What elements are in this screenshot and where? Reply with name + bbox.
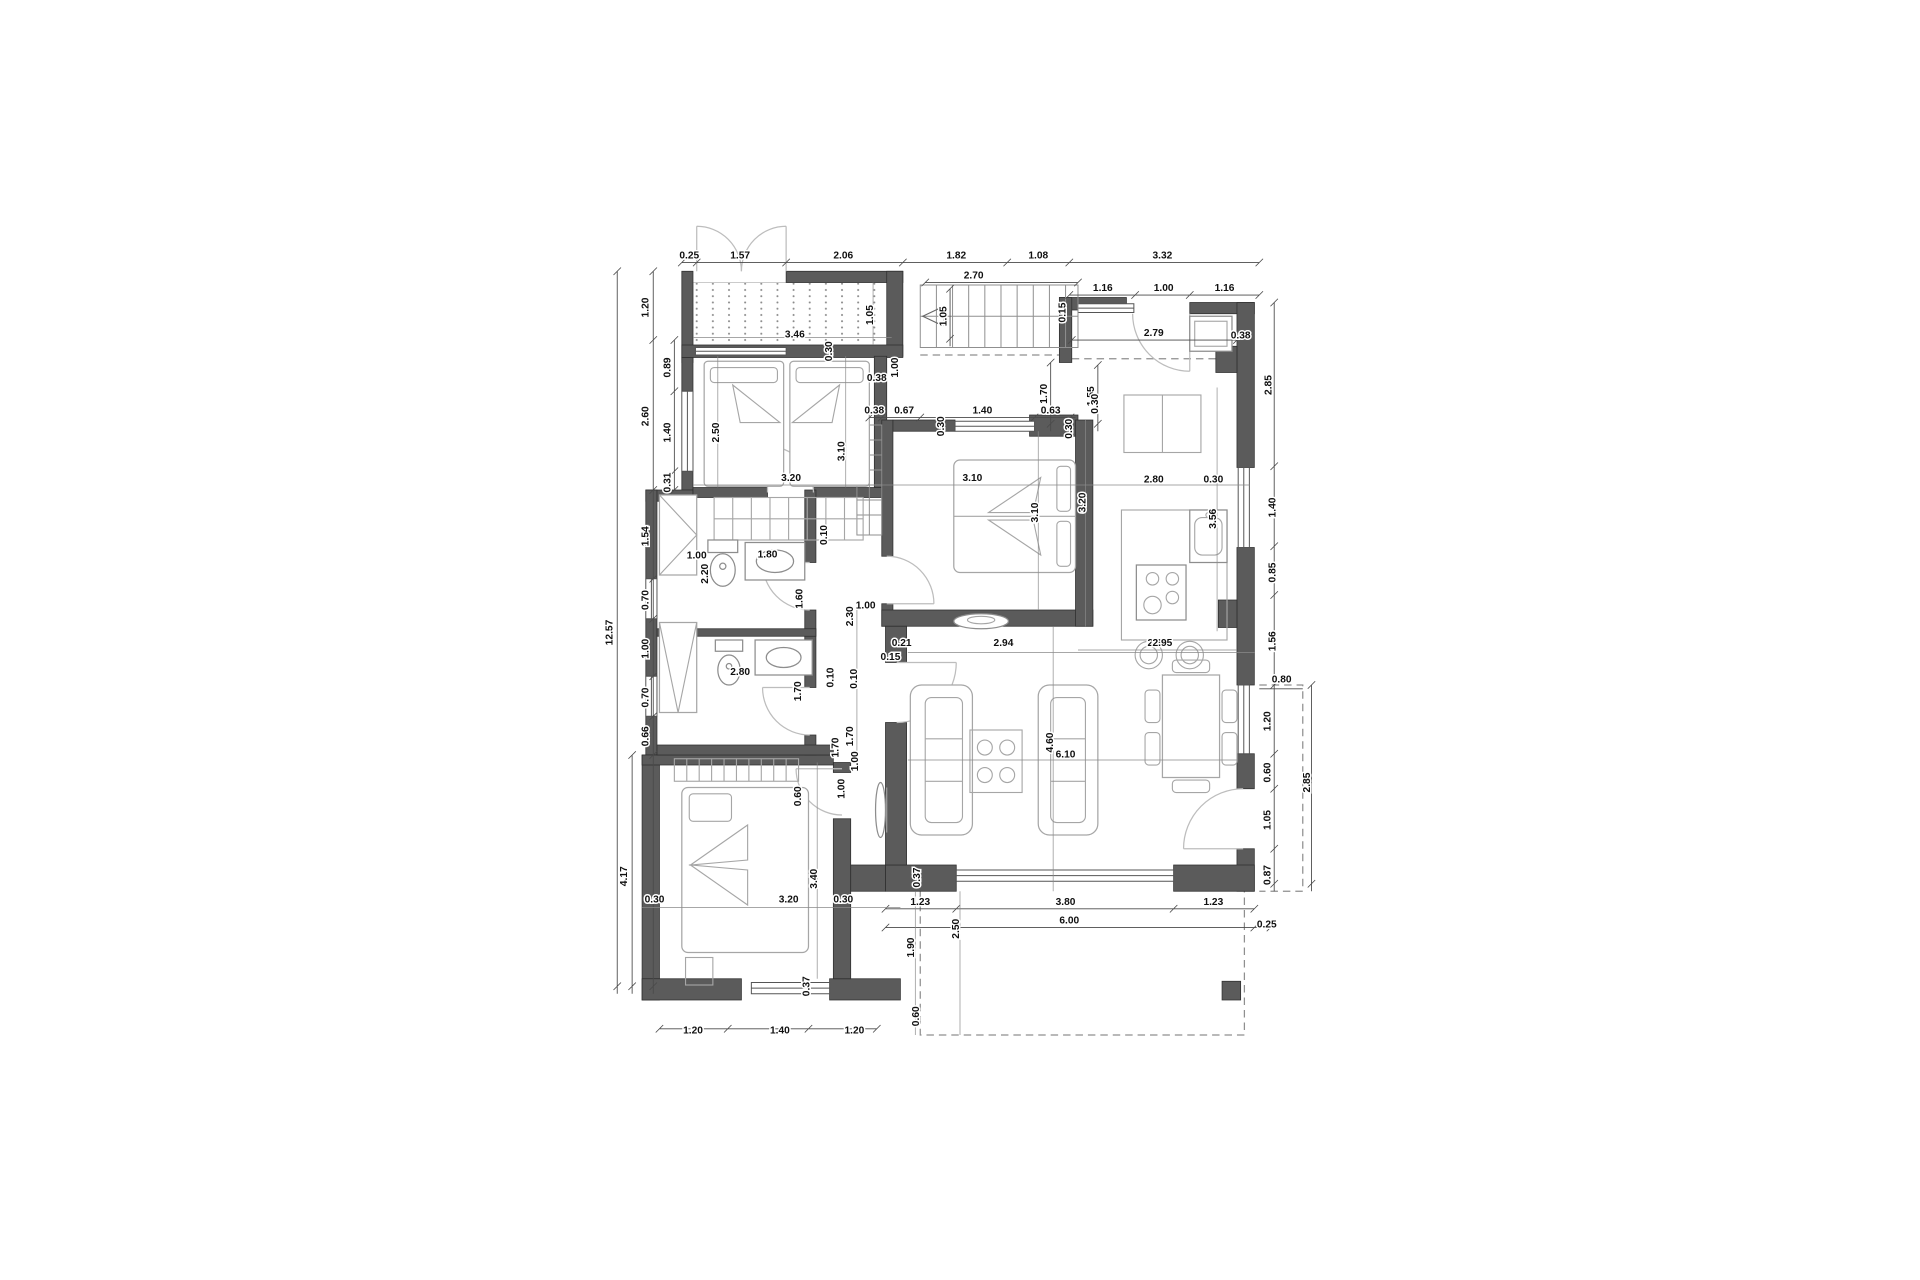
dimension-label: 3.20 [1077,492,1088,512]
dimension-label: 2.80 [730,667,750,678]
dimension-label: 0.31 [663,472,674,492]
dimension-label: 1.20 [683,1026,703,1037]
sink [745,543,805,581]
dimension-label: 1.00 [850,751,861,771]
dimension-label: 1.70 [1039,383,1050,403]
dimension-label: 1.20 [640,297,651,317]
floor-plan-page: 0.251.572.061.821.083.321.161.001.162.70… [0,0,1920,1280]
dimension-label: 0.10 [825,667,836,687]
dimension-label: 0.37 [802,976,813,996]
dimension-label: 1.23 [910,897,930,908]
dimension-label: 1.05 [938,306,949,326]
window [682,391,693,471]
dimension-label: 6.10 [1056,749,1076,760]
window [955,421,1034,431]
window [1078,304,1134,313]
dimension-label: 4.17 [619,866,630,886]
entry-door [1133,314,1190,372]
dimension-label: 1.20 [1263,711,1274,731]
dimension-label: 1.40 [770,1026,790,1037]
dimension-label: 1.00 [856,601,876,612]
dimension-label: 1.40 [663,422,674,442]
dimension-label: 1.08 [1028,251,1048,262]
sink [755,640,812,675]
dimension-label: 0.25 [679,251,699,262]
kitchen-counter [1124,395,1201,453]
toilet [708,540,738,586]
dimension-label: 0.10 [819,525,830,545]
dimension-label: 3.32 [1153,251,1173,262]
floor-plan-canvas: 0.251.572.061.821.083.321.161.001.162.70… [0,0,1920,1280]
dimension-label: 0.15 [1058,302,1069,322]
dimension-label: 1.05 [865,305,876,325]
dimension-label: 1.56 [1267,631,1278,651]
dimension-label: 3.46 [785,329,805,340]
toilet [715,640,742,685]
dimension-label: 2.50 [951,918,962,938]
dimension-label: 0.15 [881,652,901,663]
dimension-label: 3.10 [837,441,848,461]
laundry-rack [714,498,863,541]
cooktop [1136,565,1186,620]
dimension-label: 1.70 [845,726,856,746]
dimension-label: 2.50 [711,422,722,442]
bed-double [682,788,809,986]
dimension-label: 3.10 [963,473,983,484]
dimension-label: 1.00 [1154,283,1174,294]
dimension-label: 2.06 [833,251,853,262]
dimension-label: 1.16 [1215,283,1235,294]
dimension-label: 0.80 [1272,674,1292,685]
dimension-label: 1.54 [640,526,651,546]
dimension-label: 1.40 [972,406,992,417]
dimension-label: 0.38 [867,373,887,384]
dimension-label: 1.82 [946,251,966,262]
tv [876,783,887,838]
coffee-table [970,730,1022,793]
dimension-label: 0.37 [912,867,923,887]
porch-door-right [741,226,786,271]
dimension-label: 2.60 [640,406,651,426]
dimension-label: 1.00 [687,551,707,562]
window [1238,468,1249,548]
dimension-label: 1.70 [793,681,804,701]
dimension-label: 1.05 [1263,810,1274,830]
dimension-label: 0.60 [911,1006,922,1026]
window [956,870,1173,881]
dimension-label: 2.95 [1153,638,1173,649]
dimension-label: 0.21 [892,638,912,649]
dimension-label: 1.80 [758,549,778,560]
bed-single [790,361,869,486]
dimension-label: 1.40 [1267,497,1278,517]
dimension-label: 1.20 [845,1026,865,1037]
dimension-label: 0.30 [1090,393,1101,413]
wardrobe [659,495,696,575]
dimension-label: 2.30 [845,606,856,626]
dimension-label: 1.16 [1093,283,1113,294]
dimension-label: 1.60 [794,588,805,608]
dimension-label: 0.30 [1064,418,1075,438]
dimension-label: 2.20 [700,563,711,583]
dimension-label: 1.00 [837,778,848,798]
dimension-label: 4.60 [1045,732,1056,752]
dining-table [1145,660,1237,793]
window [751,983,829,994]
dimension-label: 0.87 [1263,865,1274,885]
dimension-label: 0.38 [864,406,884,417]
wardrobe [659,623,696,713]
window [1238,685,1249,754]
dimension-label: 2.94 [994,638,1014,649]
dimension-label: 3.10 [1030,502,1041,522]
dimension-label: 0.66 [640,726,651,746]
dimension-label: 0.10 [849,668,860,688]
dimension-label: 0.30 [824,341,835,361]
dimension-label: 3.56 [1208,508,1219,528]
porch-door-left [697,226,742,271]
dimension-label: 0.30 [645,894,665,905]
dimension-label: 0.63 [1041,406,1061,417]
dimension-label: 2.70 [964,271,984,282]
dimension-label: 3.40 [809,868,820,888]
dimension-label: 2.85 [1264,375,1275,395]
bedroom2-door [887,556,934,604]
dimension-label: 1.00 [640,638,651,658]
fridge [1190,316,1232,351]
bar-stool [1176,641,1203,669]
ceiling-lamp [954,614,1009,629]
dimension-label: 0.70 [640,590,651,610]
dimension-label: 1.00 [890,357,901,377]
dimension-label: 6.00 [1059,916,1079,927]
dimension-label: 3.80 [1056,897,1076,908]
dimension-label: 0.60 [1263,762,1274,782]
dimension-label: 0.85 [1267,562,1278,582]
dimension-label: 0.30 [833,894,853,905]
dimension-label: 0.70 [640,687,651,707]
dimension-label: 1.57 [730,251,750,262]
dimension-label: 0.60 [793,786,804,806]
dimension-label: 3.20 [779,894,799,905]
dimension-label: 3.20 [781,473,801,484]
dimension-label: 0.30 [1203,474,1223,485]
terrace-column [1222,981,1241,1000]
dimension-label: 0.67 [894,406,914,417]
dimension-label: 2.80 [1144,474,1164,485]
dimension-label: 1.70 [830,737,841,757]
dimension-label: 12.57 [604,619,615,645]
terrace-door [1184,789,1244,849]
dimension-label: 0.30 [936,416,947,436]
dimension-label: 0.89 [663,357,674,377]
dimension-label: 2.85 [1302,772,1313,792]
dimension-label: 1.90 [906,937,917,957]
dimension-label: 0.38 [1231,331,1251,342]
dimension-label: 1.23 [1203,897,1223,908]
dimension-label: 0.25 [1257,919,1277,930]
window [695,348,786,356]
dimension-label: 2.79 [1144,328,1164,339]
